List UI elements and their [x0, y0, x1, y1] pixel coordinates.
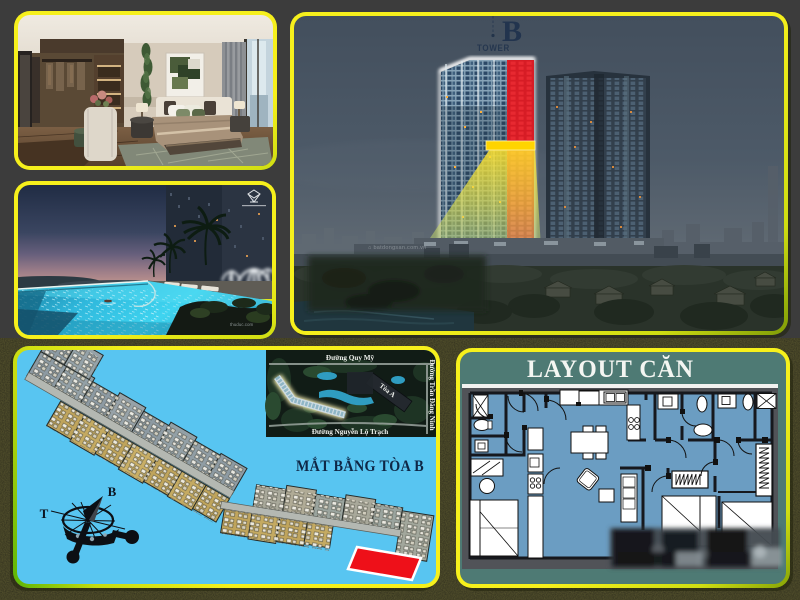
svg-text:Đường Nguyễn Lộ Trạch: Đường Nguyễn Lộ Trạch: [312, 427, 389, 436]
svg-text:Đường Quy Mỹ: Đường Quy Mỹ: [326, 354, 375, 362]
svg-text:Đường Trần Đăng Ninh: Đường Trần Đăng Ninh: [428, 359, 436, 430]
svg-text:⌂ batdongsan.com.vn: ⌂ batdongsan.com.vn: [368, 245, 427, 251]
svg-text:T: T: [40, 506, 49, 521]
svg-text:TOWER: TOWER: [477, 43, 510, 53]
svg-text:MẮT BẰNG TÒA B: MẮT BẰNG TÒA B: [296, 456, 424, 475]
svg-text:LAYOUT CĂN: LAYOUT CĂN: [527, 355, 694, 383]
svg-text:B: B: [108, 484, 117, 499]
svg-text:thuduc.com: thuduc.com: [230, 322, 254, 327]
